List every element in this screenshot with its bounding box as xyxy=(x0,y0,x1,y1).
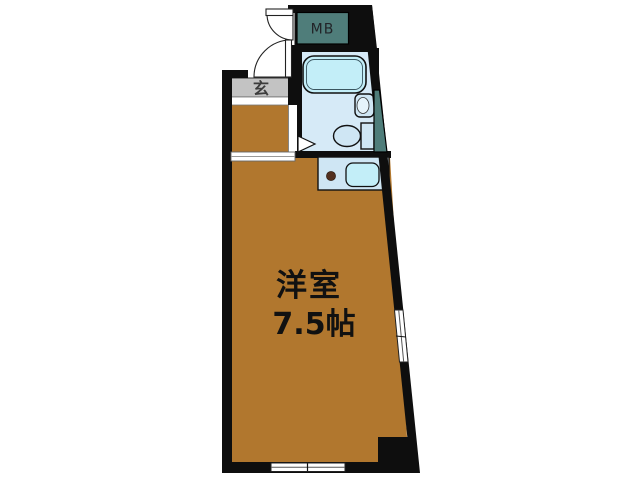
kitchen-sink xyxy=(346,163,379,187)
washbasin-bowl xyxy=(357,98,369,114)
main-room-size-label: 7.5帖 xyxy=(272,307,355,342)
meter-box-label: MB xyxy=(311,22,335,38)
entry-door-leaf xyxy=(286,40,292,77)
floorplan-svg: 洋室 7.5帖 玄 MB xyxy=(0,0,640,480)
genkan-step xyxy=(231,97,289,105)
bath-door-gap xyxy=(289,105,298,152)
burner-dot-icon xyxy=(326,171,335,180)
main-room-name-label: 洋室 xyxy=(276,268,342,304)
hallway-floor xyxy=(232,105,289,152)
toilet-tank xyxy=(361,123,374,149)
genkan-top-wall-stub xyxy=(222,70,248,78)
bathtub xyxy=(303,56,366,93)
left-wall xyxy=(222,70,232,473)
genkan-label: 玄 xyxy=(253,79,269,98)
floorplan-canvas: 洋室 7.5帖 玄 MB xyxy=(0,0,640,480)
toilet-bowl xyxy=(334,126,361,147)
outer-door-leaf xyxy=(266,9,293,16)
